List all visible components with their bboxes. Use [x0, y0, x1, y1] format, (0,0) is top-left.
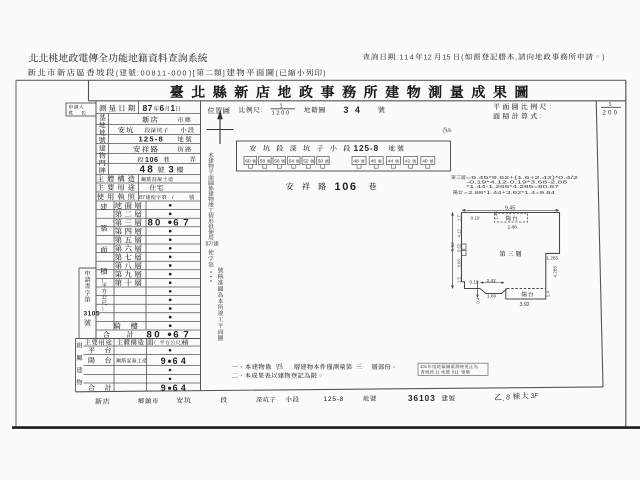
svg-text:3.92: 3.92 [520, 302, 530, 308]
svg-text:0.19: 0.19 [471, 216, 480, 221]
svg-text:80: 80 [147, 330, 162, 341]
svg-text:114: 114 [400, 53, 415, 62]
svg-text:[: [ [193, 71, 195, 78]
svg-text:1.4: 1.4 [546, 291, 551, 298]
svg-text:48: 48 [353, 159, 359, 165]
svg-text:64: 64 [173, 356, 190, 366]
svg-text:,: , [515, 55, 517, 62]
svg-text:48: 48 [140, 165, 156, 176]
svg-text:811: 811 [452, 370, 459, 375]
svg-text:1: 1 [171, 104, 176, 113]
svg-text:3.68: 3.68 [456, 259, 461, 268]
svg-text:50: 50 [318, 159, 324, 165]
svg-text:00811-000: 00811-000 [141, 69, 188, 78]
svg-text:58: 58 [260, 159, 266, 165]
svg-text:64: 64 [173, 383, 190, 393]
svg-text:40: 40 [422, 159, 428, 165]
svg-text:4.12: 4.12 [456, 229, 461, 238]
svg-text::: : [540, 113, 542, 120]
svg-text:]: ] [223, 71, 225, 78]
svg-text:106: 106 [335, 181, 358, 193]
svg-text:106: 106 [145, 155, 159, 164]
svg-text:80: 80 [148, 218, 163, 229]
svg-text:1.60: 1.60 [487, 293, 497, 299]
svg-text:6: 6 [160, 104, 165, 113]
svg-text:1.265: 1.265 [547, 255, 559, 260]
svg-text:36103: 36103 [408, 394, 436, 403]
svg-text:4.285: 4.285 [553, 266, 558, 278]
svg-text:9: 9 [161, 383, 166, 393]
svg-text:52: 52 [303, 159, 309, 165]
svg-text:1200: 1200 [272, 111, 291, 117]
svg-text:125-8: 125-8 [324, 396, 344, 403]
svg-text:42: 42 [405, 159, 411, 165]
svg-text::: : [550, 104, 552, 111]
svg-text:2.88: 2.88 [508, 225, 518, 231]
svg-text:56: 56 [274, 159, 280, 165]
svg-text:44: 44 [388, 159, 394, 165]
svg-text:54: 54 [289, 159, 295, 165]
svg-text:0.4: 0.4 [475, 297, 480, 303]
svg-text:3105: 3105 [84, 311, 101, 318]
svg-text:9.62: 9.62 [450, 242, 456, 252]
svg-text:=2.88*1.44+3.92*1.4=9.64: =2.88*1.44+3.92*1.4=9.64 [464, 190, 556, 196]
svg-text:87: 87 [143, 103, 153, 113]
svg-text:67: 67 [173, 330, 193, 341]
svg-text:2.42: 2.42 [487, 278, 497, 284]
svg-text:3: 3 [169, 165, 174, 175]
svg-text:): ) [323, 71, 325, 78]
svg-text:3: 3 [344, 105, 349, 115]
svg-text:87: 87 [139, 195, 145, 201]
svg-text:0.62: 0.62 [456, 243, 461, 252]
svg-text:67: 67 [173, 218, 193, 229]
svg-text::: : [261, 107, 263, 114]
svg-text:4: 4 [355, 105, 360, 115]
svg-text::: : [396, 55, 398, 62]
svg-text:125-8: 125-8 [139, 135, 164, 144]
svg-text:87/: 87/ [206, 242, 214, 248]
svg-text:60: 60 [245, 159, 251, 165]
svg-text::: : [137, 71, 139, 78]
svg-text:*1.44-1.265*4.285=80.67: *1.44-1.265*4.285=80.67 [466, 184, 559, 190]
svg-text:12: 12 [424, 53, 432, 62]
svg-text:1.5: 1.5 [456, 277, 461, 283]
svg-text:8: 8 [506, 394, 510, 401]
svg-text:101: 101 [420, 364, 428, 369]
svg-text:9: 9 [161, 356, 166, 366]
svg-text:200: 200 [603, 110, 620, 116]
svg-text:1.7: 1.7 [456, 215, 461, 221]
svg-text:11: 11 [435, 370, 440, 375]
svg-text:3F: 3F [530, 393, 539, 400]
svg-text:): ) [189, 71, 191, 78]
svg-text:): ) [602, 55, 604, 62]
svg-text:15: 15 [442, 53, 450, 62]
svg-text:46: 46 [371, 159, 377, 165]
svg-text:1.44: 1.44 [494, 211, 499, 220]
svg-text:125-8: 125-8 [354, 143, 379, 153]
